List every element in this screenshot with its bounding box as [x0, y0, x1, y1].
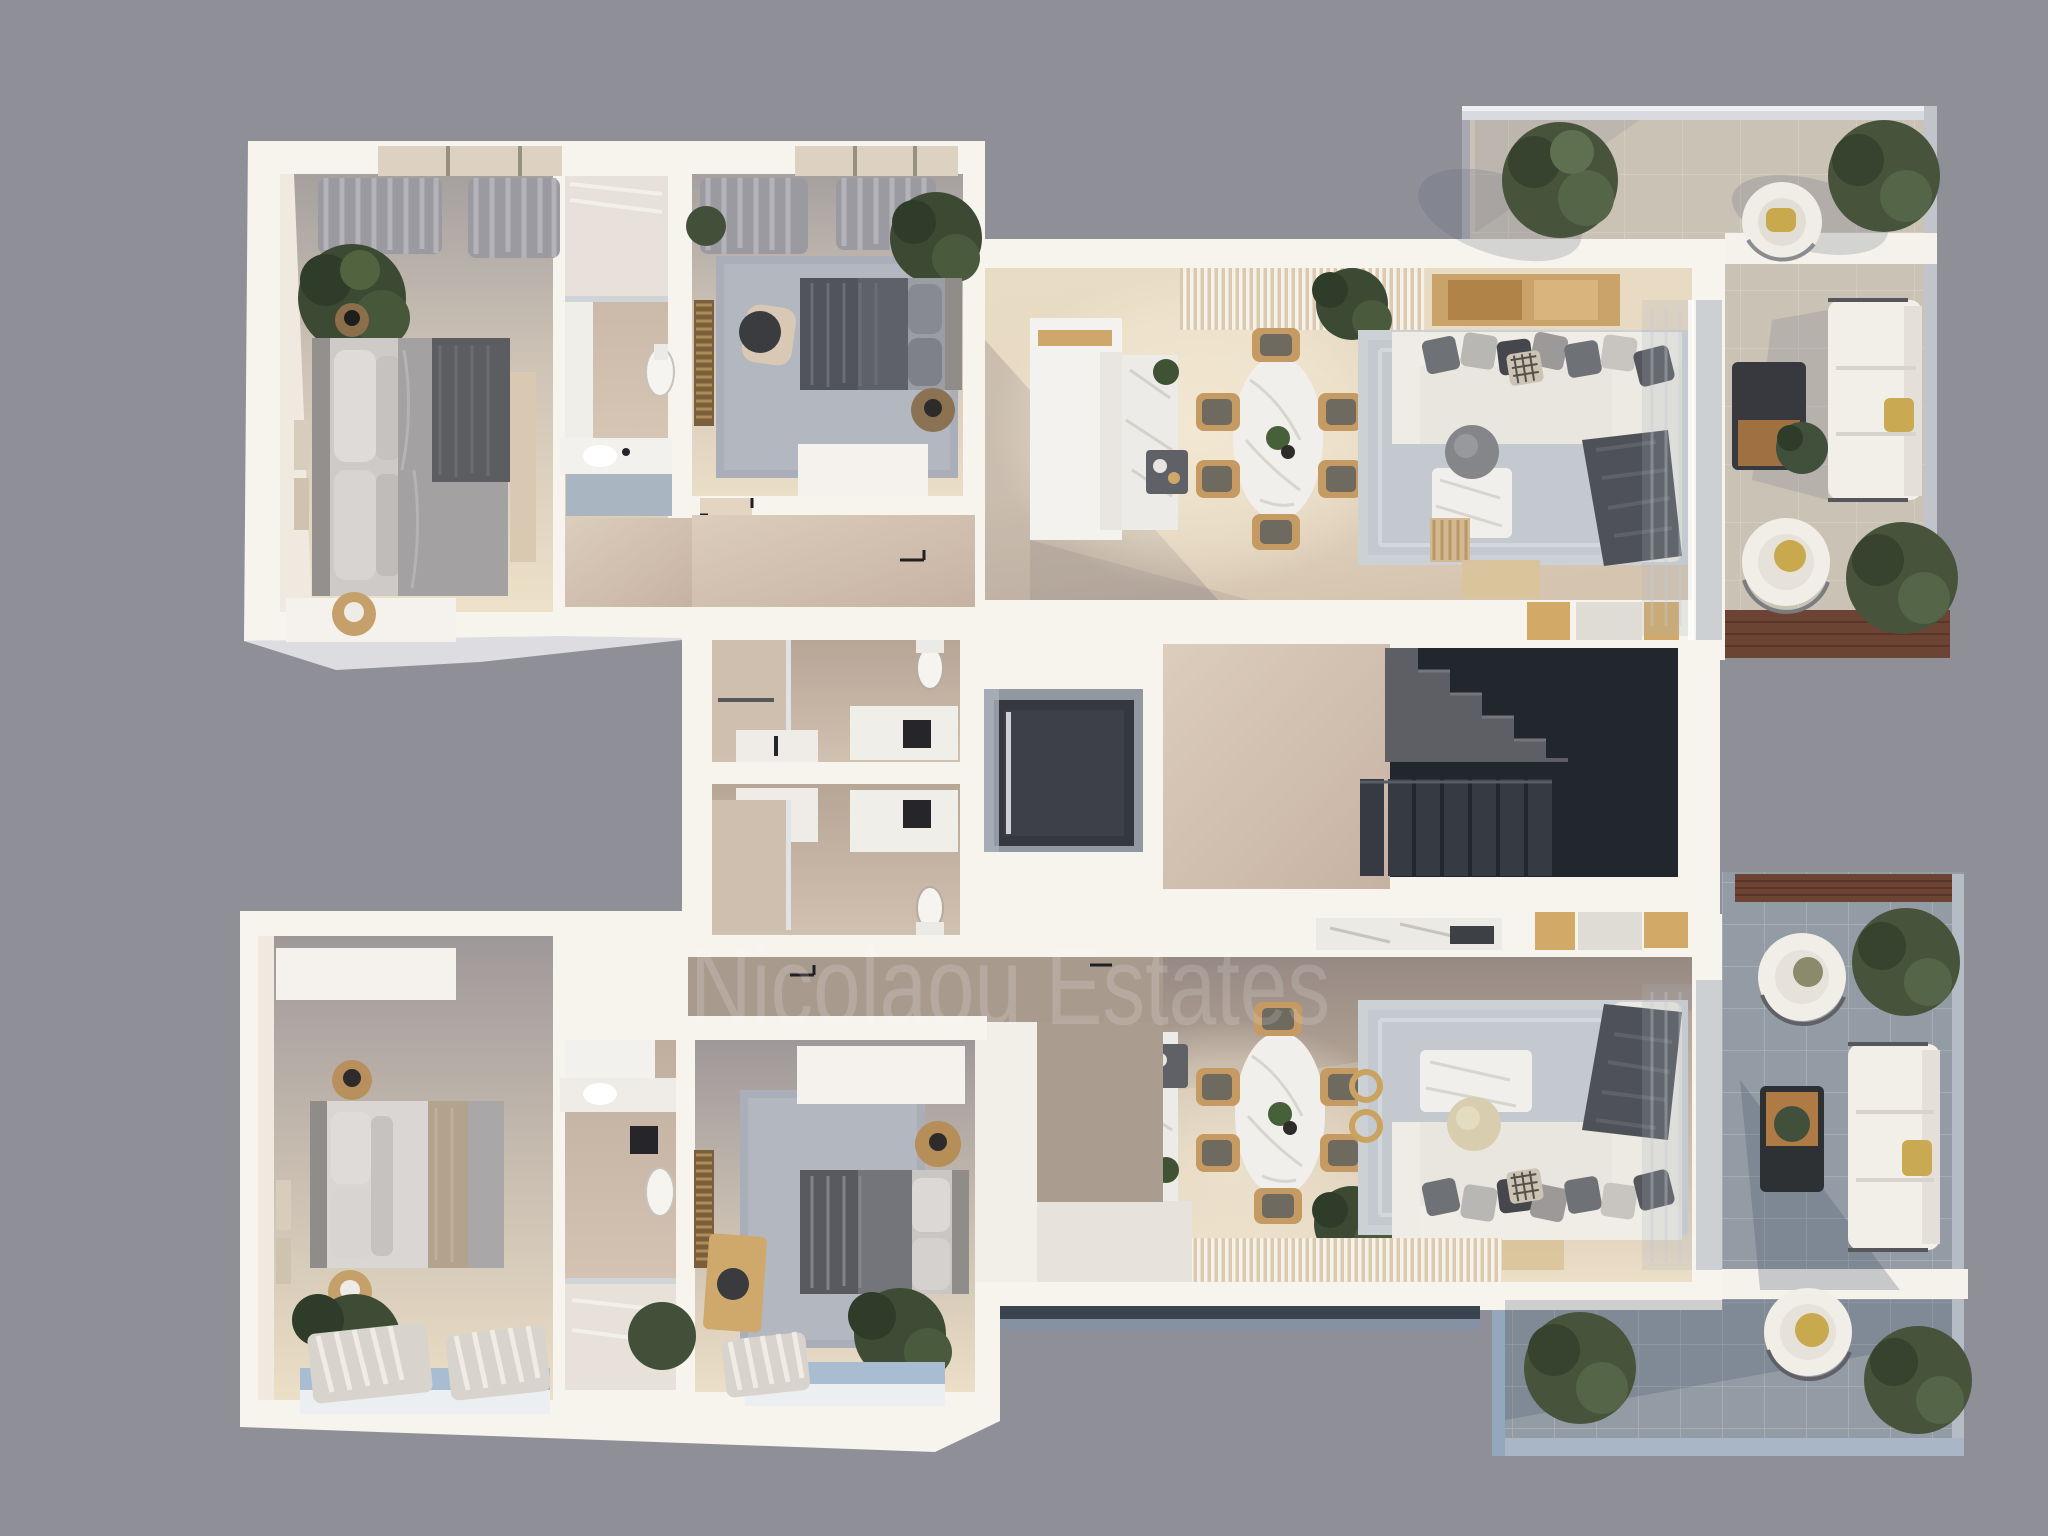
svg-text:Nicolaou Estates: Nicolaou Estates — [690, 925, 1330, 1048]
